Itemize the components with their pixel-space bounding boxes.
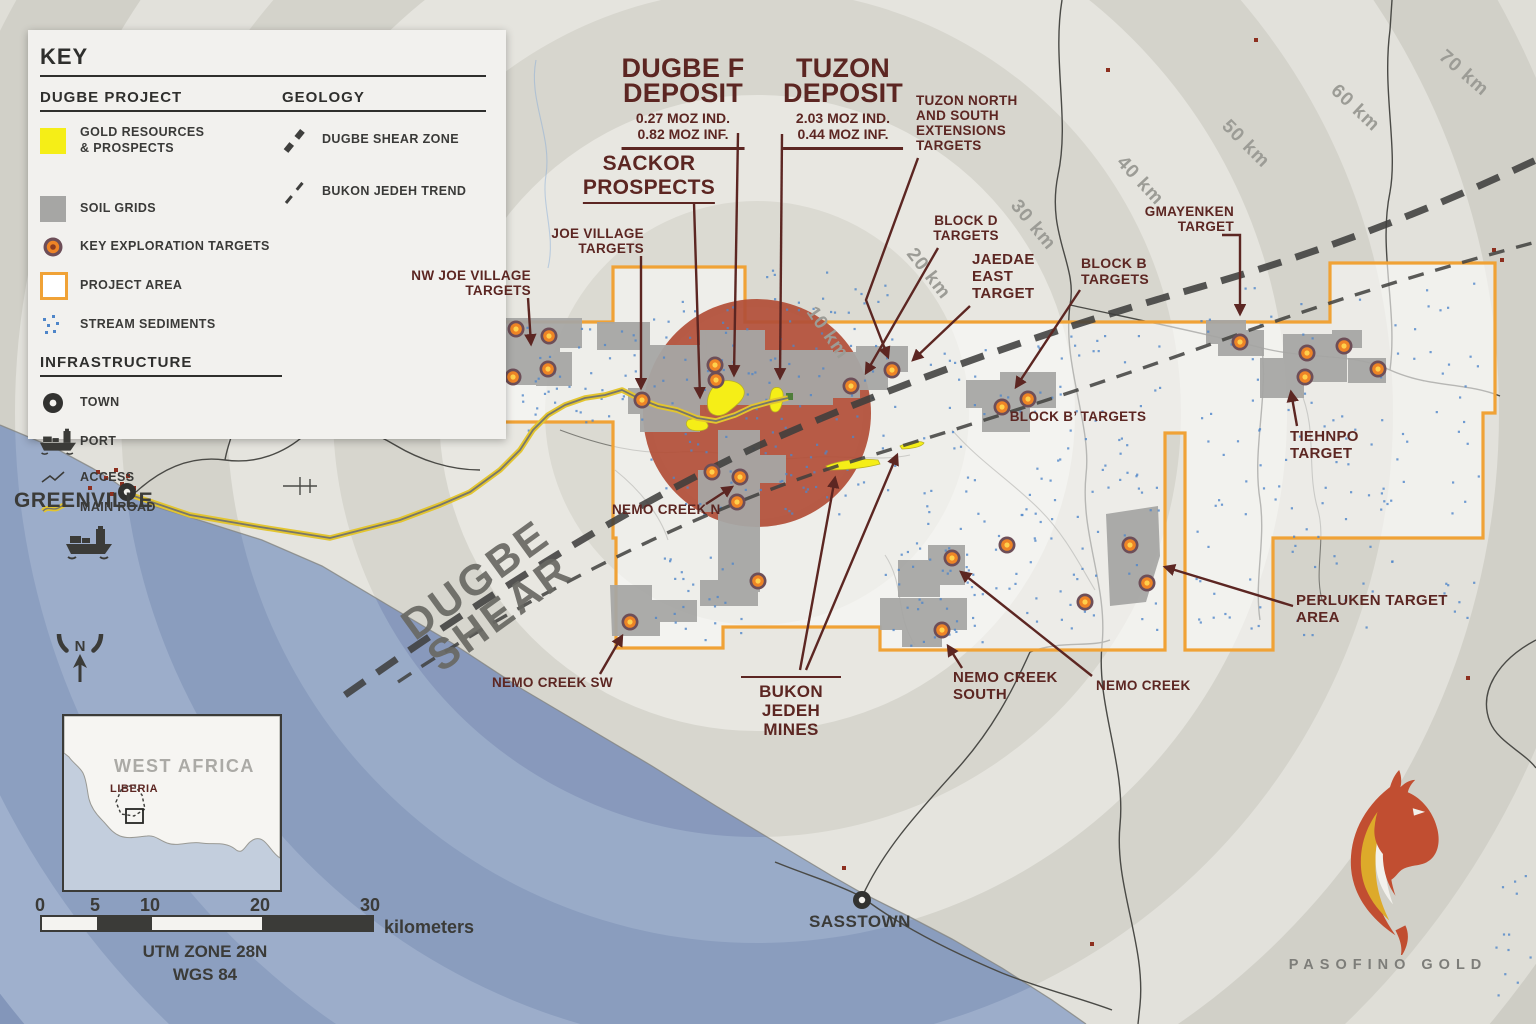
- map-label-block-b: BLOCK B TARGETS: [1081, 256, 1149, 287]
- map-label-block-b2: BLOCK B’ TARGETS: [1010, 409, 1147, 424]
- project-area-outline-icon: [40, 272, 80, 300]
- exploration-target-dot: [729, 494, 746, 511]
- pasofino-horse-logo: [1318, 770, 1468, 955]
- key-item-stream-sediments: STREAM SEDIMENTS: [40, 312, 282, 338]
- exploration-target-dot: [1232, 334, 1249, 351]
- exploration-target-dot: [934, 622, 951, 639]
- exploration-target-dot: [884, 362, 901, 379]
- exploration-target-dot: [999, 537, 1016, 554]
- access-icon: [40, 468, 80, 488]
- key-item-gold-resources: GOLD RESOURCES & PROSPECTS: [40, 125, 282, 156]
- exploration-target-dot: [634, 392, 651, 409]
- soil-grids-swatch: [40, 196, 80, 222]
- north-arrow-icon: N: [52, 634, 108, 694]
- exploration-target-dot: [750, 573, 767, 590]
- key-item-shear-zone: DUGBE SHEAR ZONE: [282, 125, 486, 155]
- exploration-target-dot: [704, 464, 721, 481]
- exploration-target-dot-icon: [40, 234, 80, 260]
- exploration-target-dot: [1139, 575, 1156, 592]
- exploration-target-dot: [994, 399, 1011, 416]
- greenville-label: GREENVILLE: [14, 489, 153, 513]
- key-item-soil-grids: SOIL GRIDS: [40, 196, 282, 222]
- town-icon: [40, 390, 80, 416]
- map-stage: { "key_panel": { "title": "KEY", "projec…: [0, 0, 1536, 1024]
- key-item-access: ACCESS: [40, 468, 282, 488]
- stream-sediments-dots-icon: [40, 312, 80, 338]
- port-icon: [40, 428, 80, 456]
- exploration-target-dot: [1122, 537, 1139, 554]
- exploration-target-dot: [508, 321, 525, 338]
- west-africa-inset: WEST AFRICA LIBERIA: [62, 714, 282, 892]
- scale-bar-segments: [40, 915, 374, 932]
- exploration-target-dot: [1020, 391, 1037, 408]
- key-panel: KEY DUGBE PROJECT GOLD RESOURCES & PROSP…: [28, 30, 506, 439]
- svg-text:N: N: [75, 638, 86, 655]
- map-label-sackor: SACKOR PROSPECTS: [583, 152, 715, 204]
- trend-dash-icon: [282, 177, 322, 207]
- map-label-joe-village: JOE VILLAGE TARGETS: [551, 226, 644, 256]
- map-label-nw-joe-village: NW JOE VILLAGE TARGETS: [411, 268, 531, 298]
- key-heading-infrastructure: INFRASTRUCTURE: [40, 354, 282, 377]
- key-item-town: TOWN: [40, 390, 282, 416]
- map-label-nemo-south: NEMO CREEK SOUTH: [953, 670, 1058, 704]
- map-label-nemo-sw: NEMO CREEK SW: [492, 675, 613, 690]
- map-label-gmayenken: GMAYENKEN TARGET: [1145, 204, 1234, 234]
- scale-crs: UTM ZONE 28N WGS 84: [40, 941, 370, 987]
- exploration-target-dot: [1299, 345, 1316, 362]
- inset-land: [64, 716, 280, 858]
- map-label-tiehnpo: TIEHNPO TARGET: [1290, 429, 1359, 463]
- key-title: KEY: [40, 44, 486, 77]
- dugbe-f-deposit-callout: DUGBE F DEPOSIT 0.27 MOZ IND. 0.82 MOZ I…: [622, 56, 745, 150]
- dugbe-f-stats: 0.27 MOZ IND. 0.82 MOZ INF.: [622, 110, 745, 150]
- map-label-block-d: BLOCK D TARGETS: [933, 213, 999, 243]
- exploration-target-dot: [1077, 594, 1094, 611]
- sasstown-label: SASSTOWN: [809, 912, 911, 932]
- exploration-target-dot: [1370, 361, 1387, 378]
- exploration-target-dot: [622, 614, 639, 631]
- exploration-target-dot: [707, 357, 724, 374]
- key-item-exploration-targets: KEY EXPLORATION TARGETS: [40, 234, 282, 260]
- map-label-perluken: PERLUKEN TARGET AREA: [1296, 593, 1448, 627]
- scale-tick-30: 30: [360, 895, 380, 916]
- tuzon-deposit-callout: TUZON DEPOSIT 2.03 MOZ IND. 0.44 MOZ INF…: [783, 56, 903, 150]
- scale-unit: kilometers: [384, 917, 474, 938]
- gold-resources-swatch: [40, 128, 80, 154]
- sasstown-town-icon: [853, 891, 871, 909]
- exploration-target-dot: [1336, 338, 1353, 355]
- exploration-target-dot: [843, 378, 860, 395]
- key-heading-dugbe-project: DUGBE PROJECT: [40, 89, 282, 112]
- scale-bar: 0 5 10 20 30 kilometers UTM ZONE 28N WGS…: [28, 895, 488, 987]
- scale-tick-10: 10: [140, 895, 160, 916]
- map-label-tuzon-ns: TUZON NORTH AND SOUTH EXTENSIONS TARGETS: [916, 93, 1018, 153]
- tuzon-title: TUZON DEPOSIT: [783, 56, 903, 106]
- scale-ticks: 0 5 10 20 30: [28, 895, 488, 915]
- inset-country-label: LIBERIA: [110, 783, 158, 795]
- map-label-bukon: BUKON JEDEH MINES: [741, 676, 841, 739]
- exploration-target-dot: [505, 369, 522, 386]
- exploration-target-dot: [541, 328, 558, 345]
- key-item-trend: BUKON JEDEH TREND: [282, 177, 486, 207]
- tuzon-stats: 2.03 MOZ IND. 0.44 MOZ INF.: [783, 110, 903, 150]
- dugbe-f-title: DUGBE F DEPOSIT: [622, 56, 745, 106]
- inset-region-label: WEST AFRICA: [114, 756, 255, 777]
- exploration-target-dot: [732, 469, 749, 486]
- key-item-project-area: PROJECT AREA: [40, 272, 282, 300]
- map-label-jaedae: JAEDAE EAST TARGET: [972, 252, 1035, 302]
- key-heading-geology: GEOLOGY: [282, 89, 486, 112]
- exploration-target-dot: [1297, 369, 1314, 386]
- scale-tick-20: 20: [250, 895, 270, 916]
- exploration-target-dot: [540, 361, 557, 378]
- scale-tick-0: 0: [35, 895, 45, 916]
- exploration-target-dot: [944, 550, 961, 567]
- pasofino-gold-wordmark: PASOFINO GOLD: [1289, 957, 1488, 973]
- map-label-nemo-creek: NEMO CREEK: [1096, 678, 1191, 693]
- exploration-target-dot: [708, 372, 725, 389]
- map-label-nemo-n: NEMO CREEK N: [612, 502, 721, 517]
- shear-zone-dash-icon: [282, 125, 322, 155]
- key-item-port: PORT: [40, 428, 282, 456]
- scale-tick-5: 5: [90, 895, 100, 916]
